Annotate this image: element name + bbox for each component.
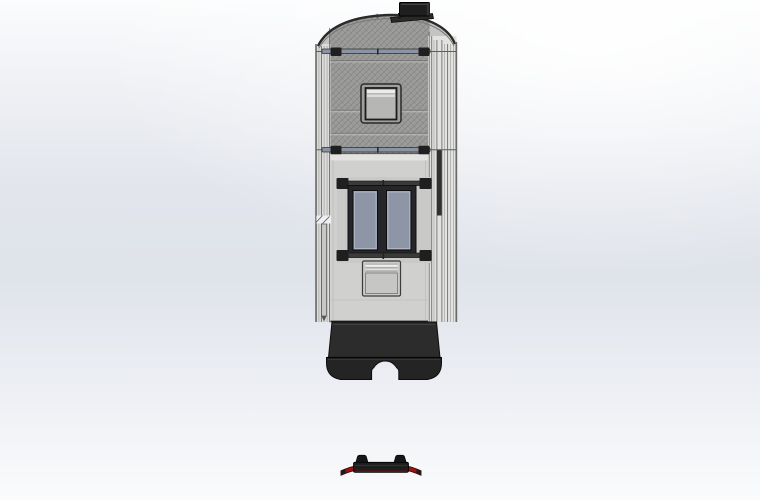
ac-side-face xyxy=(427,3,430,16)
window-glass-right xyxy=(387,191,412,251)
hitch-bar-red-sliver xyxy=(355,471,407,472)
skylight-strip-1 xyxy=(367,90,395,93)
roof-skylight-hatch[interactable] xyxy=(361,84,401,123)
hitch-post-left xyxy=(356,455,368,462)
roof-ac-unit[interactable] xyxy=(391,3,434,23)
bumper-upper xyxy=(329,322,441,358)
window-bracket-top-right xyxy=(420,178,432,189)
bumper-lower-skirt xyxy=(327,358,442,380)
window-bracket-bottom-right xyxy=(420,250,432,261)
rear-bumper-skirt[interactable] xyxy=(327,322,442,380)
side-trim-left[interactable] xyxy=(315,28,331,322)
skylight-strip-2 xyxy=(367,95,395,98)
trim-left-channel xyxy=(322,224,327,316)
window-glass-left xyxy=(353,191,378,251)
door-vent-panel[interactable] xyxy=(363,261,401,296)
panel-top-band xyxy=(330,154,430,161)
camper-assembly[interactable] xyxy=(315,3,457,380)
vent-strip-2 xyxy=(366,269,398,271)
rail-lower-center-tick xyxy=(377,147,379,153)
trim-left-joint-gap xyxy=(315,216,331,224)
rail-upper-bracket-right xyxy=(419,48,430,57)
window-bracket-top-left xyxy=(337,178,349,189)
vent-pane xyxy=(366,273,398,294)
side-trim-right[interactable] xyxy=(428,32,457,322)
cad-viewport[interactable] xyxy=(0,0,760,500)
trim-right-dark-strip xyxy=(437,150,442,216)
window-bottom-center-tick xyxy=(383,252,385,259)
vent-top-band xyxy=(366,264,398,273)
cad-model-canvas xyxy=(0,0,760,500)
window-bracket-bottom-left xyxy=(337,250,349,261)
entry-door-window-pair[interactable] xyxy=(337,177,432,263)
detached-hitch-guard[interactable] xyxy=(341,455,421,475)
rail-lower-bracket-left xyxy=(331,146,342,155)
rail-upper-bracket-left xyxy=(331,48,342,57)
rail-upper-center-tick xyxy=(377,49,379,55)
rail-lower-bracket-right xyxy=(419,146,430,155)
vent-strip-1 xyxy=(366,265,398,267)
hitch-post-right xyxy=(394,455,406,462)
